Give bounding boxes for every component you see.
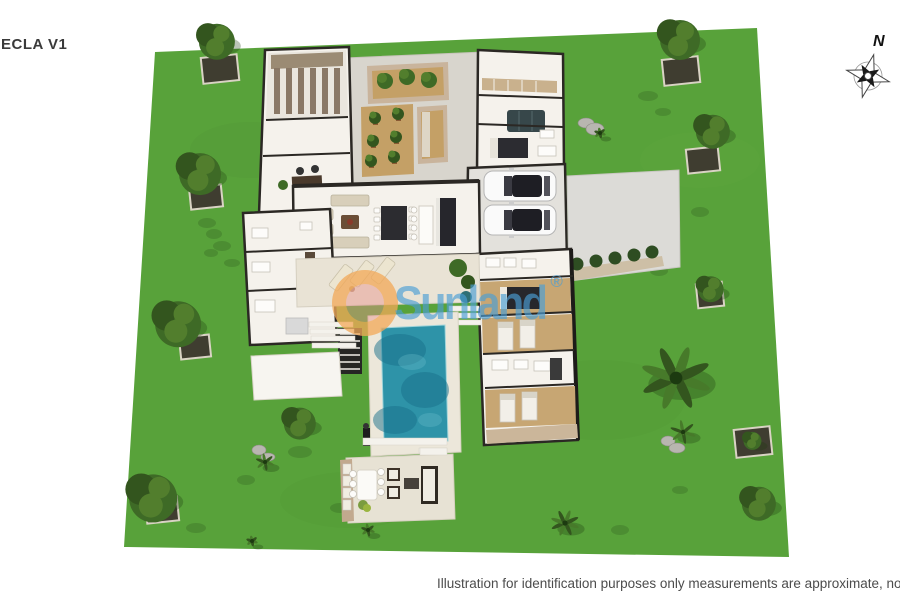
patio-dining-set xyxy=(350,469,385,501)
porch-slab xyxy=(251,352,342,400)
compass-north-label: N xyxy=(873,33,885,50)
car xyxy=(484,168,556,204)
car xyxy=(484,202,556,238)
site-plan-rendering xyxy=(0,0,900,600)
compass-rose: N xyxy=(840,28,900,108)
suite-block xyxy=(477,50,564,172)
floorplan-illustration: Sunland ® ECLA V1 N Illustration for ide… xyxy=(0,0,900,600)
plan-title: ECLA V1 xyxy=(1,36,67,53)
disclaimer-caption: Illustration for identification purposes… xyxy=(437,576,900,591)
staircase xyxy=(338,328,362,374)
sofa xyxy=(507,110,545,132)
compass-star-icon xyxy=(841,49,895,103)
central-courtyard xyxy=(345,52,484,194)
driveway xyxy=(567,170,680,281)
bush xyxy=(734,426,773,458)
bedroom-wing xyxy=(477,249,578,445)
